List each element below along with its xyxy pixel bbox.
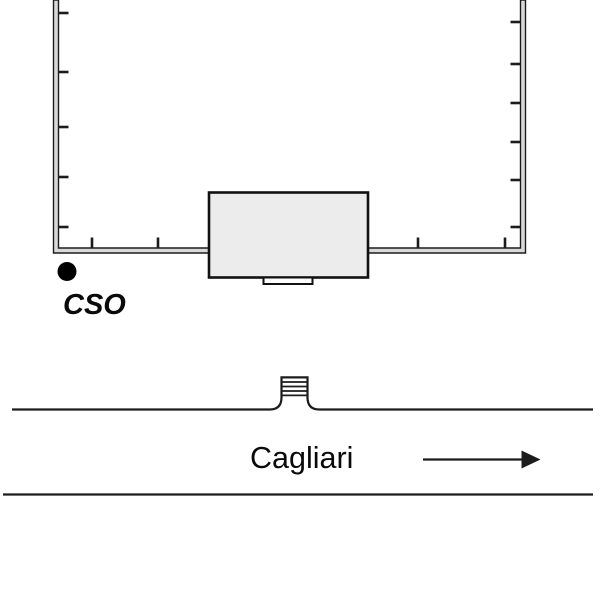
left-wall-ticks [58,13,69,227]
diagram-svg: CSO Cagliari [0,0,600,600]
cso-marker-dot [58,262,77,281]
stadium-street-diagram: CSO Cagliari [0,0,600,600]
arrow-head [522,451,541,469]
direction-arrow-icon [423,451,541,469]
cso-label: CSO [63,289,126,321]
building-entrance [264,278,313,285]
street-name-label: Cagliari [250,441,353,475]
right-wall-ticks [511,22,522,227]
building [209,193,368,278]
gate-steps-hatching [282,382,308,395]
